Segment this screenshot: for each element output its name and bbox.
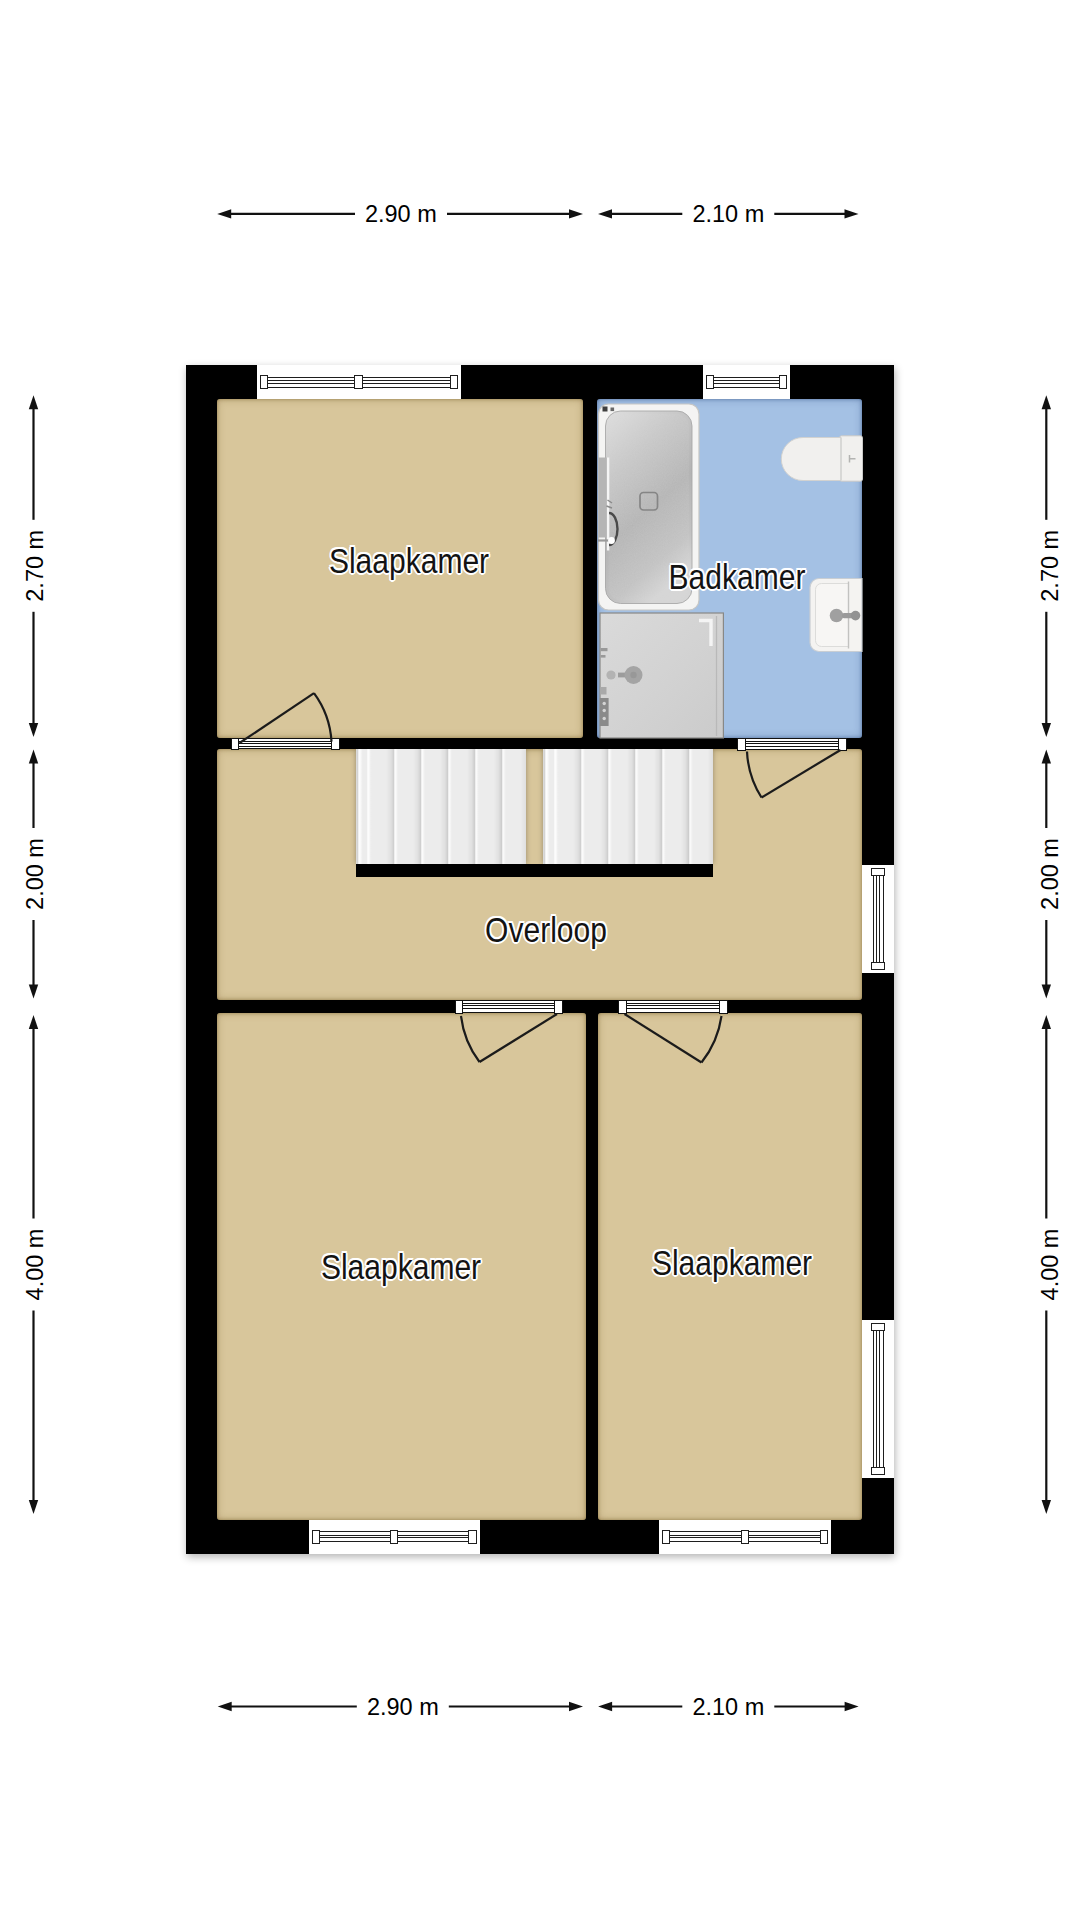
svg-text:4.00 m: 4.00 m [22, 1229, 48, 1301]
svg-text:2.70 m: 2.70 m [1037, 530, 1063, 602]
svg-text:2.90 m: 2.90 m [365, 201, 437, 227]
svg-text:2.10 m: 2.10 m [692, 1694, 764, 1720]
svg-text:2.90 m: 2.90 m [367, 1694, 439, 1720]
svg-text:4.00 m: 4.00 m [1037, 1229, 1063, 1301]
svg-text:2.00 m: 2.00 m [1037, 838, 1063, 910]
svg-text:2.10 m: 2.10 m [692, 201, 764, 227]
svg-text:2.00 m: 2.00 m [22, 838, 48, 910]
svg-text:2.70 m: 2.70 m [22, 530, 48, 602]
